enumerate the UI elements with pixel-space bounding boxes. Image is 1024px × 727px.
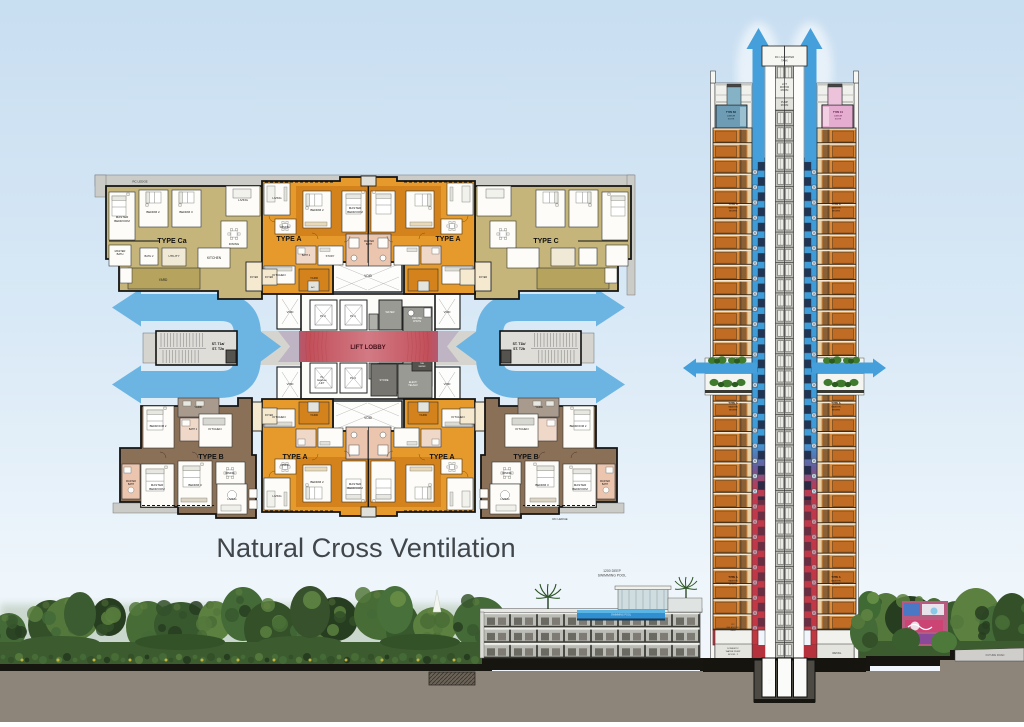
svg-text:STUDY: STUDY (326, 254, 335, 258)
svg-text:YARD: YARD (310, 413, 319, 417)
svg-text:BALANCING: BALANCING (727, 626, 740, 629)
svg-text:BEDRM 2: BEDRM 2 (310, 480, 324, 484)
svg-text:DINING: DINING (229, 242, 240, 246)
svg-text:WATER: WATER (419, 365, 427, 368)
svg-text:VOID: VOID (287, 310, 294, 314)
svg-text:TYPE B: TYPE B (513, 454, 538, 461)
svg-text:BEDROOM: BEDROOM (347, 210, 363, 214)
svg-text:MASTER: MASTER (831, 207, 841, 210)
svg-text:KITCHEN: KITCHEN (515, 427, 528, 431)
svg-text:TANK: TANK (730, 629, 736, 632)
svg-text:TANK: TANK (781, 59, 788, 63)
svg-text:YARD: YARD (419, 413, 428, 417)
svg-text:BEDRM 3: BEDRM 3 (535, 483, 549, 487)
svg-text:LIVING: LIVING (272, 494, 281, 498)
svg-text:BEDROOM 2: BEDROOM 2 (150, 424, 167, 428)
svg-text:ST. T2a: ST. T2a (212, 347, 224, 351)
svg-text:UTILITY: UTILITY (168, 254, 179, 258)
svg-text:TYPE A: TYPE A (276, 236, 301, 243)
svg-text:KITCHEN: KITCHEN (207, 256, 222, 260)
svg-text:TYPE Ca: TYPE Ca (157, 238, 186, 245)
svg-text:BEDRM: BEDRM (729, 410, 737, 412)
svg-text:TYPE A: TYPE A (728, 401, 737, 405)
svg-text:LIVING: LIVING (500, 497, 509, 501)
svg-text:BEDRM 3: BEDRM 3 (188, 483, 202, 487)
svg-text:DINING: DINING (280, 225, 289, 229)
svg-text:VOID: VOID (364, 416, 372, 420)
svg-text:SWIMMING POOL: SWIMMING POOL (611, 614, 632, 617)
svg-text:MASTER: MASTER (831, 406, 841, 409)
svg-text:1200 DEEP: 1200 DEEP (603, 569, 621, 573)
svg-text:MASTER: MASTER (728, 580, 738, 583)
svg-text:BEDROOM 2: BEDROOM 2 (570, 424, 587, 428)
svg-text:TYPE A: TYPE A (831, 575, 840, 579)
svg-text:ROOM: ROOM (781, 89, 789, 92)
svg-text:YARD: YARD (159, 278, 168, 282)
svg-text:PL 2: PL 2 (320, 314, 326, 318)
svg-text:BEDRM: BEDRM (832, 410, 840, 412)
svg-text:ROOM - 2: ROOM - 2 (728, 654, 739, 656)
svg-text:LIVING: LIVING (272, 196, 281, 200)
svg-text:BATH: BATH (117, 252, 124, 256)
svg-text:VOID: VOID (444, 382, 451, 386)
svg-text:RETAIL: RETAIL (833, 651, 842, 655)
svg-text:TYPE A: TYPE A (429, 454, 454, 461)
svg-text:JUNIOR: JUNIOR (727, 116, 736, 118)
svg-text:BEDROOM: BEDROOM (572, 487, 588, 491)
svg-text:BATH 2: BATH 2 (145, 254, 154, 258)
svg-text:VOID: VOID (444, 310, 451, 314)
svg-text:BEDROOM: BEDROOM (347, 486, 363, 490)
svg-text:LIFT: LIFT (320, 382, 325, 385)
svg-text:WATER: WATER (385, 310, 394, 314)
svg-text:KITCHEN: KITCHEN (451, 415, 464, 419)
svg-text:FOYER: FOYER (265, 414, 274, 417)
svg-text:PL 1: PL 1 (350, 314, 356, 318)
svg-text:MASTER: MASTER (831, 580, 841, 583)
svg-text:KITCHEN: KITCHEN (208, 427, 221, 431)
svg-text:TYPE B2: TYPE B2 (726, 111, 737, 114)
svg-text:TYPE A: TYPE A (435, 236, 460, 243)
svg-text:STORE: STORE (380, 378, 389, 382)
svg-text:CHUTE: CHUTE (413, 320, 422, 323)
svg-text:LIFT LOBBY: LIFT LOBBY (350, 345, 385, 351)
svg-text:TYPE A: TYPE A (728, 202, 737, 206)
svg-text:DINING: DINING (280, 463, 289, 467)
svg-text:MASTER: MASTER (728, 207, 738, 210)
svg-text:DOMESTIC: DOMESTIC (727, 648, 739, 650)
svg-text:LIVING: LIVING (227, 497, 236, 501)
svg-text:VOID: VOID (287, 382, 294, 386)
svg-text:BEDRM 3: BEDRM 3 (179, 210, 193, 214)
svg-text:BATH: BATH (602, 483, 608, 486)
svg-text:TYPE C1: TYPE C1 (833, 111, 844, 114)
svg-text:WATER PUMP: WATER PUMP (726, 650, 741, 653)
svg-text:VOID: VOID (364, 274, 372, 278)
svg-text:TYPE A: TYPE A (831, 202, 840, 206)
svg-text:YARD: YARD (310, 276, 319, 280)
svg-text:YARD: YARD (535, 405, 543, 409)
svg-text:BEDRM 2: BEDRM 2 (146, 210, 160, 214)
svg-text:SWIMMING POOL: SWIMMING POOL (598, 574, 627, 578)
svg-text:YARD: YARD (194, 405, 202, 409)
svg-text:DINING: DINING (225, 471, 234, 475)
svg-text:MASTER: MASTER (728, 406, 738, 409)
svg-text:BEDRM: BEDRM (729, 211, 737, 213)
svg-text:SUITE: SUITE (728, 119, 735, 121)
svg-text:BATH 2: BATH 2 (302, 254, 311, 257)
svg-text:RC LEDGE: RC LEDGE (552, 517, 567, 521)
svg-text:DINING: DINING (502, 471, 511, 475)
svg-text:THE: THE (420, 363, 425, 365)
svg-text:BATH: BATH (128, 483, 134, 486)
svg-text:KITCHEN: KITCHEN (272, 415, 285, 419)
svg-text:BEDRM 2: BEDRM 2 (310, 208, 324, 212)
svg-text:TYPE A: TYPE A (728, 575, 737, 579)
svg-text:ST. T1b/: ST. T1b/ (513, 342, 526, 346)
svg-text:KITCHEN: KITCHEN (272, 273, 285, 277)
svg-text:BEDROOM: BEDROOM (114, 219, 130, 223)
svg-text:RC LEDGE: RC LEDGE (132, 180, 147, 184)
svg-text:TYPE B: TYPE B (198, 454, 223, 461)
svg-text:FUTURE ROAD: FUTURE ROAD (986, 653, 1005, 657)
svg-text:TYPE A: TYPE A (282, 454, 307, 461)
svg-text:BEDRM: BEDRM (832, 211, 840, 213)
svg-text:ROOM: ROOM (781, 104, 788, 107)
svg-text:ST. T1a/: ST. T1a/ (212, 342, 225, 346)
svg-text:FOYER: FOYER (479, 276, 488, 279)
svg-text:LIVING: LIVING (238, 198, 249, 202)
svg-text:BATH: BATH (366, 243, 372, 246)
svg-text:RC / AC WATER: RC / AC WATER (775, 55, 794, 59)
svg-text:FOYER: FOYER (250, 276, 259, 279)
svg-text:FOYER: FOYER (265, 276, 274, 279)
svg-text:TEL/ELV: TEL/ELV (408, 384, 418, 387)
svg-text:BATH 2: BATH 2 (189, 428, 198, 431)
svg-text:Natural Cross Ventilation: Natural Cross Ventilation (216, 532, 515, 563)
svg-text:BEDROOM: BEDROOM (149, 487, 165, 491)
svg-text:A/C: A/C (311, 286, 315, 289)
svg-text:JUNIOR: JUNIOR (834, 116, 843, 118)
svg-text:BEDRM: BEDRM (729, 584, 737, 586)
svg-text:TYPE C: TYPE C (533, 238, 558, 245)
svg-text:RC: RC (731, 624, 735, 626)
svg-text:PL 3: PL 3 (350, 376, 356, 380)
svg-text:ST. T2b: ST. T2b (513, 347, 525, 351)
svg-text:TYPE A: TYPE A (831, 401, 840, 405)
svg-text:SUITE: SUITE (835, 119, 842, 121)
svg-text:BEDRM: BEDRM (832, 584, 840, 586)
